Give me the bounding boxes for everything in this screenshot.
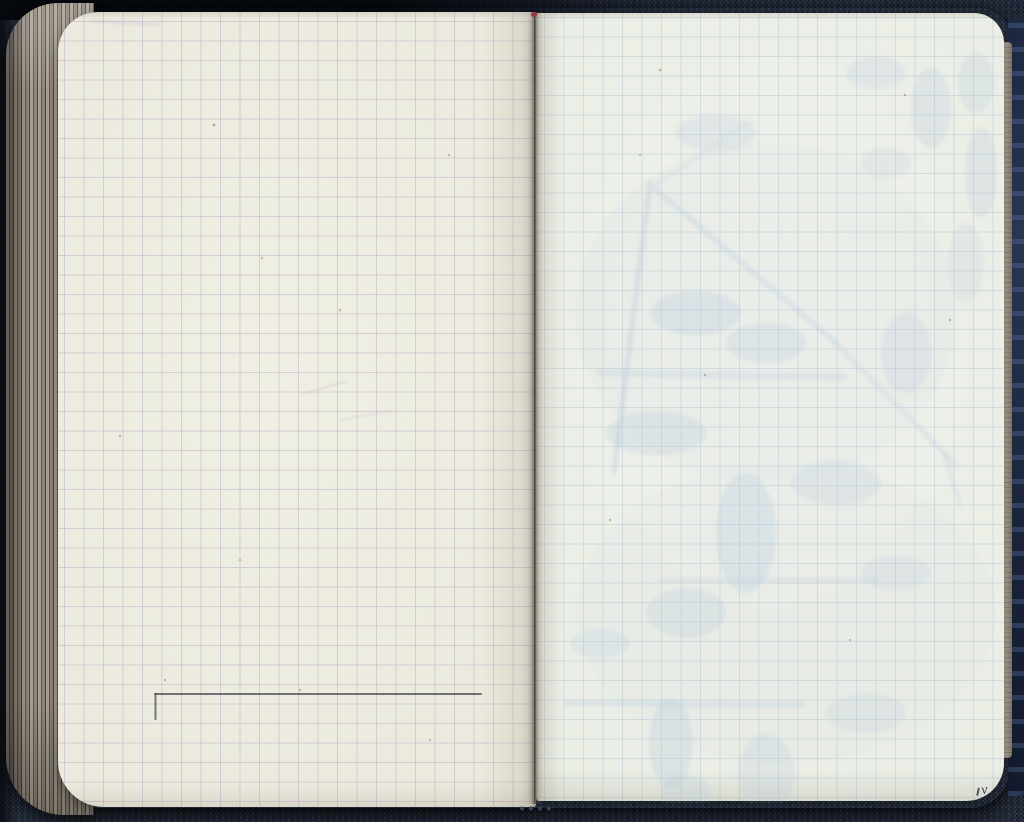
photo-open-notebook: v xyxy=(0,0,1024,822)
spine-ribbon-dot xyxy=(531,12,537,17)
right-page: v xyxy=(536,13,1004,801)
spine-gutter xyxy=(528,12,542,804)
pencil-line xyxy=(58,12,536,807)
corner-mark: v xyxy=(976,783,989,798)
left-page xyxy=(58,12,536,807)
spine-stitching xyxy=(518,804,554,813)
show-through-ghost-layer xyxy=(536,13,1004,801)
